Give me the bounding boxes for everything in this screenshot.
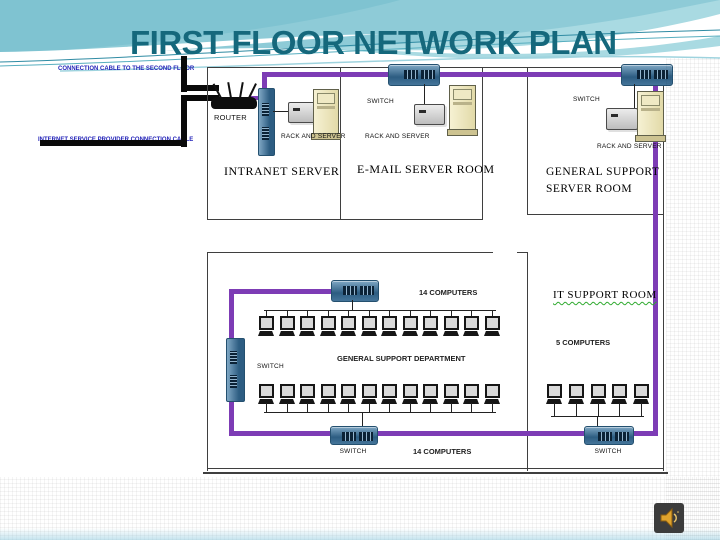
room-name-intranet-server: INTRANET SERVER [224, 164, 339, 179]
rack-switch-icon-gsd-left [226, 338, 245, 402]
rack-and-server-label: RACK AND SERVER [597, 143, 662, 150]
trunk-cable-top [262, 72, 658, 77]
computer-icon [402, 384, 418, 404]
drop-cable [369, 310, 370, 316]
switch-label-gsd-left: SWITCH [257, 363, 284, 370]
bus-line-top-row [264, 310, 496, 311]
switch-server-cable [634, 84, 635, 108]
room-name-general-support-department: GENERAL SUPPORT DEPARTMENT [337, 354, 465, 363]
drop-cable [451, 310, 452, 316]
bus-line-bottom-row [264, 412, 496, 413]
computer-icon [340, 316, 356, 336]
computer-icon [340, 384, 356, 404]
drop-cable [471, 403, 472, 412]
computer-icon [546, 384, 562, 404]
switch-label-email: SWITCH [367, 98, 394, 105]
drop-cable [430, 403, 431, 412]
rack-server-cable [273, 111, 289, 112]
switch-icon-it [584, 426, 634, 445]
drop-cable [266, 310, 267, 316]
drop-cable [307, 403, 308, 412]
computer-icon [381, 316, 397, 336]
switch-label-gsd-bottom: SWITCH [330, 448, 376, 455]
switch-server-cable [424, 84, 425, 104]
computer-icon [258, 384, 274, 404]
computer-icon [484, 384, 500, 404]
drop-cable [471, 310, 472, 316]
room-name-general-support-line2: SERVER ROOM [546, 183, 632, 195]
computer-icon [463, 316, 479, 336]
switch-icon-general-support [621, 64, 673, 86]
drop-cable [348, 310, 349, 316]
computer-icon [633, 384, 649, 404]
router-icon [211, 78, 259, 110]
slide: FIRST FLOOR NETWORK PLAN CONNECTION CABL… [0, 0, 720, 540]
wall-gs-room-bottom [527, 214, 664, 215]
wall-gsd-left [207, 252, 208, 471]
drop-cable [266, 403, 267, 412]
wall-upper-bottom [207, 219, 483, 220]
switch-icon-gsd-bottom [330, 426, 378, 445]
wall-email-right [482, 67, 483, 220]
second-floor-cable-label: CONNECTION CABLE TO THE SECOND FLOOR [58, 66, 194, 72]
drop-cable [287, 310, 288, 316]
computer-count-label-top: 14 COMPUTERS [419, 288, 477, 297]
drop-cable [389, 403, 390, 412]
computer-icon [484, 316, 500, 336]
computer-icon [299, 384, 315, 404]
speaker-icon[interactable] [654, 503, 684, 533]
computer-icon [568, 384, 584, 404]
switch-label-general-support: SWITCH [573, 96, 600, 103]
switch-bus-cable [352, 300, 353, 310]
drop-cable [410, 310, 411, 316]
computer-icon [422, 316, 438, 336]
computer-icon [299, 316, 315, 336]
room-name-email-server: E-MAIL SERVER ROOM [357, 162, 495, 177]
drop-cable [369, 403, 370, 412]
wall-gs-room-left [527, 67, 528, 215]
isp-cable-horizontal [40, 140, 187, 146]
bus-switch-cable [362, 413, 363, 427]
wall-left-upper [207, 67, 208, 220]
server-icon [606, 108, 638, 130]
computer-icon [443, 316, 459, 336]
wall-divider-intranet-email [340, 67, 341, 220]
drop-cable [641, 403, 642, 416]
computer-count-label-bottom: 14 COMPUTERS [413, 447, 471, 456]
computer-icon [402, 316, 418, 336]
computer-count-label-it: 5 COMPUTERS [556, 338, 610, 347]
computer-tower-icon [313, 89, 339, 137]
computer-tower-icon [449, 85, 476, 133]
drop-cable [348, 403, 349, 412]
drop-cable [492, 403, 493, 412]
drop-cable [430, 310, 431, 316]
drop-cable [307, 310, 308, 316]
computer-icon [443, 384, 459, 404]
drop-cable [328, 310, 329, 316]
drop-cable [598, 403, 599, 416]
drop-cable [492, 310, 493, 316]
wall-bottom-outer [203, 472, 668, 474]
wall-bottom-inner [207, 468, 664, 469]
router-label: ROUTER [214, 113, 247, 122]
computer-icon [279, 316, 295, 336]
rack-and-server-label: RACK AND SERVER [281, 133, 346, 140]
room-name-it-support: IT SUPPORT ROOM [553, 289, 657, 301]
computer-icon [258, 316, 274, 336]
computer-icon [320, 316, 336, 336]
computer-icon [381, 384, 397, 404]
rack-switch-icon [258, 88, 275, 156]
wall-it-left [527, 252, 528, 471]
computer-icon [320, 384, 336, 404]
computer-icon [463, 384, 479, 404]
computer-tower-icon [637, 91, 664, 139]
drop-cable [451, 403, 452, 412]
server-icon [288, 102, 316, 123]
drop-cable [619, 403, 620, 416]
background-texture-right [666, 58, 720, 540]
computer-icon [279, 384, 295, 404]
drop-cable [410, 403, 411, 412]
computer-icon [611, 384, 627, 404]
drop-cable [287, 403, 288, 412]
trunk-cable-gsd-link [229, 289, 335, 294]
bottom-wave-decoration [0, 528, 720, 540]
room-name-general-support-line1: GENERAL SUPPORT [546, 166, 659, 178]
switch-icon-gsd-top [331, 280, 379, 302]
computer-icon [590, 384, 606, 404]
switch-label-it: SWITCH [584, 448, 632, 455]
server-icon [414, 104, 445, 125]
drop-cable [554, 403, 555, 416]
computer-icon [361, 384, 377, 404]
rack-and-server-label: RACK AND SERVER [365, 133, 430, 140]
slide-title: FIRST FLOOR NETWORK PLAN [130, 24, 590, 62]
switch-icon-email [388, 64, 440, 86]
drop-cable [389, 310, 390, 316]
computer-icon [422, 384, 438, 404]
drop-cable [576, 403, 577, 416]
wall-gsd-top [207, 252, 493, 253]
drop-cable [328, 403, 329, 412]
computer-icon [361, 316, 377, 336]
